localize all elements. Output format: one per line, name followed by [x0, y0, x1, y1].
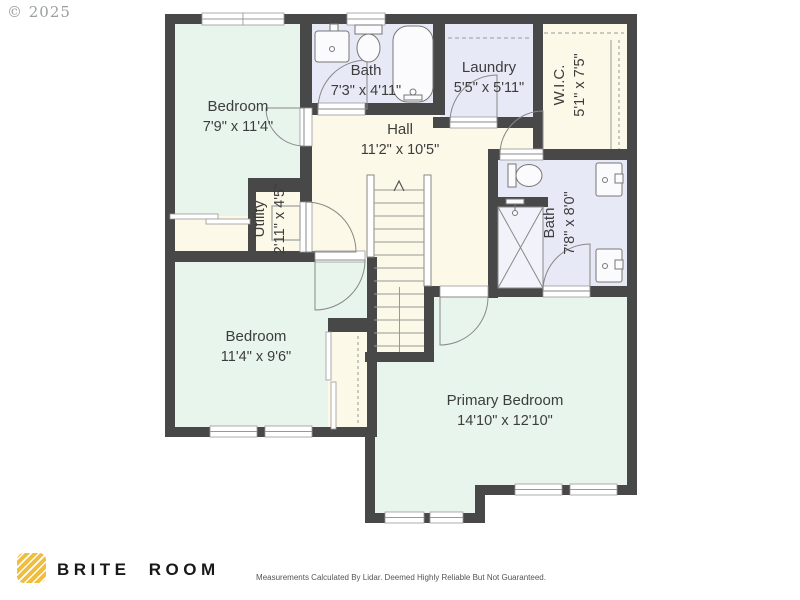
shower-icon	[498, 199, 543, 288]
brite-room-logo-icon	[17, 553, 46, 583]
disclaimer-text: Measurements Calculated By Lidar. Deemed…	[256, 573, 546, 582]
footer: BRITE ROOM Measurements Calculated By Li…	[0, 545, 800, 600]
room-name: Laundry	[454, 57, 524, 78]
room-name: Utility	[249, 184, 270, 254]
room-name: Bath	[539, 191, 560, 254]
sliding-door-panel	[206, 219, 250, 224]
copyright-watermark: © 2025	[7, 3, 71, 21]
room-dims: 5'1" x 7'5"	[570, 53, 591, 116]
door-opening-bedroom-1	[300, 108, 312, 146]
room-dims: 11'2" x 10'5"	[361, 140, 439, 161]
room-dims: 7'3" x 4'11"	[331, 81, 401, 102]
sliding-door-panel	[331, 382, 336, 429]
room-label-utility: Utility 2'11" x 4'5"	[249, 184, 291, 254]
room-label-bath-top: Bath 7'3" x 4'11"	[331, 60, 401, 102]
room-label-primary-bedroom: Primary Bedroom 14'10" x 12'10"	[447, 390, 564, 432]
room-name: Bath	[331, 60, 401, 81]
floor-plan-page: Bedroom 7'9" x 11'4" Bath 7'3" x 4'11" L…	[0, 0, 800, 600]
room-dims: 11'4" x 9'6"	[221, 347, 291, 368]
room-dims: 2'11" x 4'5"	[270, 184, 291, 254]
room-label-wic: W.I.C. 5'1" x 7'5"	[549, 53, 591, 116]
room-dims: 7'9" x 11'4"	[203, 117, 273, 138]
stair-rail	[424, 175, 431, 286]
room-name: Bedroom	[221, 326, 291, 347]
room-label-bedroom-1: Bedroom 7'9" x 11'4"	[203, 96, 273, 138]
sink-icon	[596, 163, 623, 196]
toilet-icon	[508, 164, 542, 187]
sliding-door-panel	[170, 214, 218, 219]
room-dims: 14'10" x 12'10"	[447, 411, 564, 432]
brand-name: BRITE ROOM	[57, 560, 220, 580]
room-dims: 7'8" x 8'0"	[560, 191, 581, 254]
stair-rail	[367, 175, 374, 257]
room-name: Hall	[361, 119, 439, 140]
room-dims: 5'5" x 5'11"	[454, 78, 524, 99]
sliding-door-panel	[326, 332, 331, 380]
room-name: Bedroom	[203, 96, 273, 117]
room-label-hall: Hall 11'2" x 10'5"	[361, 119, 439, 161]
room-name: Primary Bedroom	[447, 390, 564, 411]
door-opening-primary	[440, 286, 488, 297]
sink-icon	[596, 249, 623, 282]
room-label-bath-right: Bath 7'8" x 8'0"	[539, 191, 581, 254]
room-label-laundry: Laundry 5'5" x 5'11"	[454, 57, 524, 99]
room-name: W.I.C.	[549, 53, 570, 116]
room-label-bedroom-2: Bedroom 11'4" x 9'6"	[221, 326, 291, 368]
toilet-icon	[355, 25, 382, 62]
